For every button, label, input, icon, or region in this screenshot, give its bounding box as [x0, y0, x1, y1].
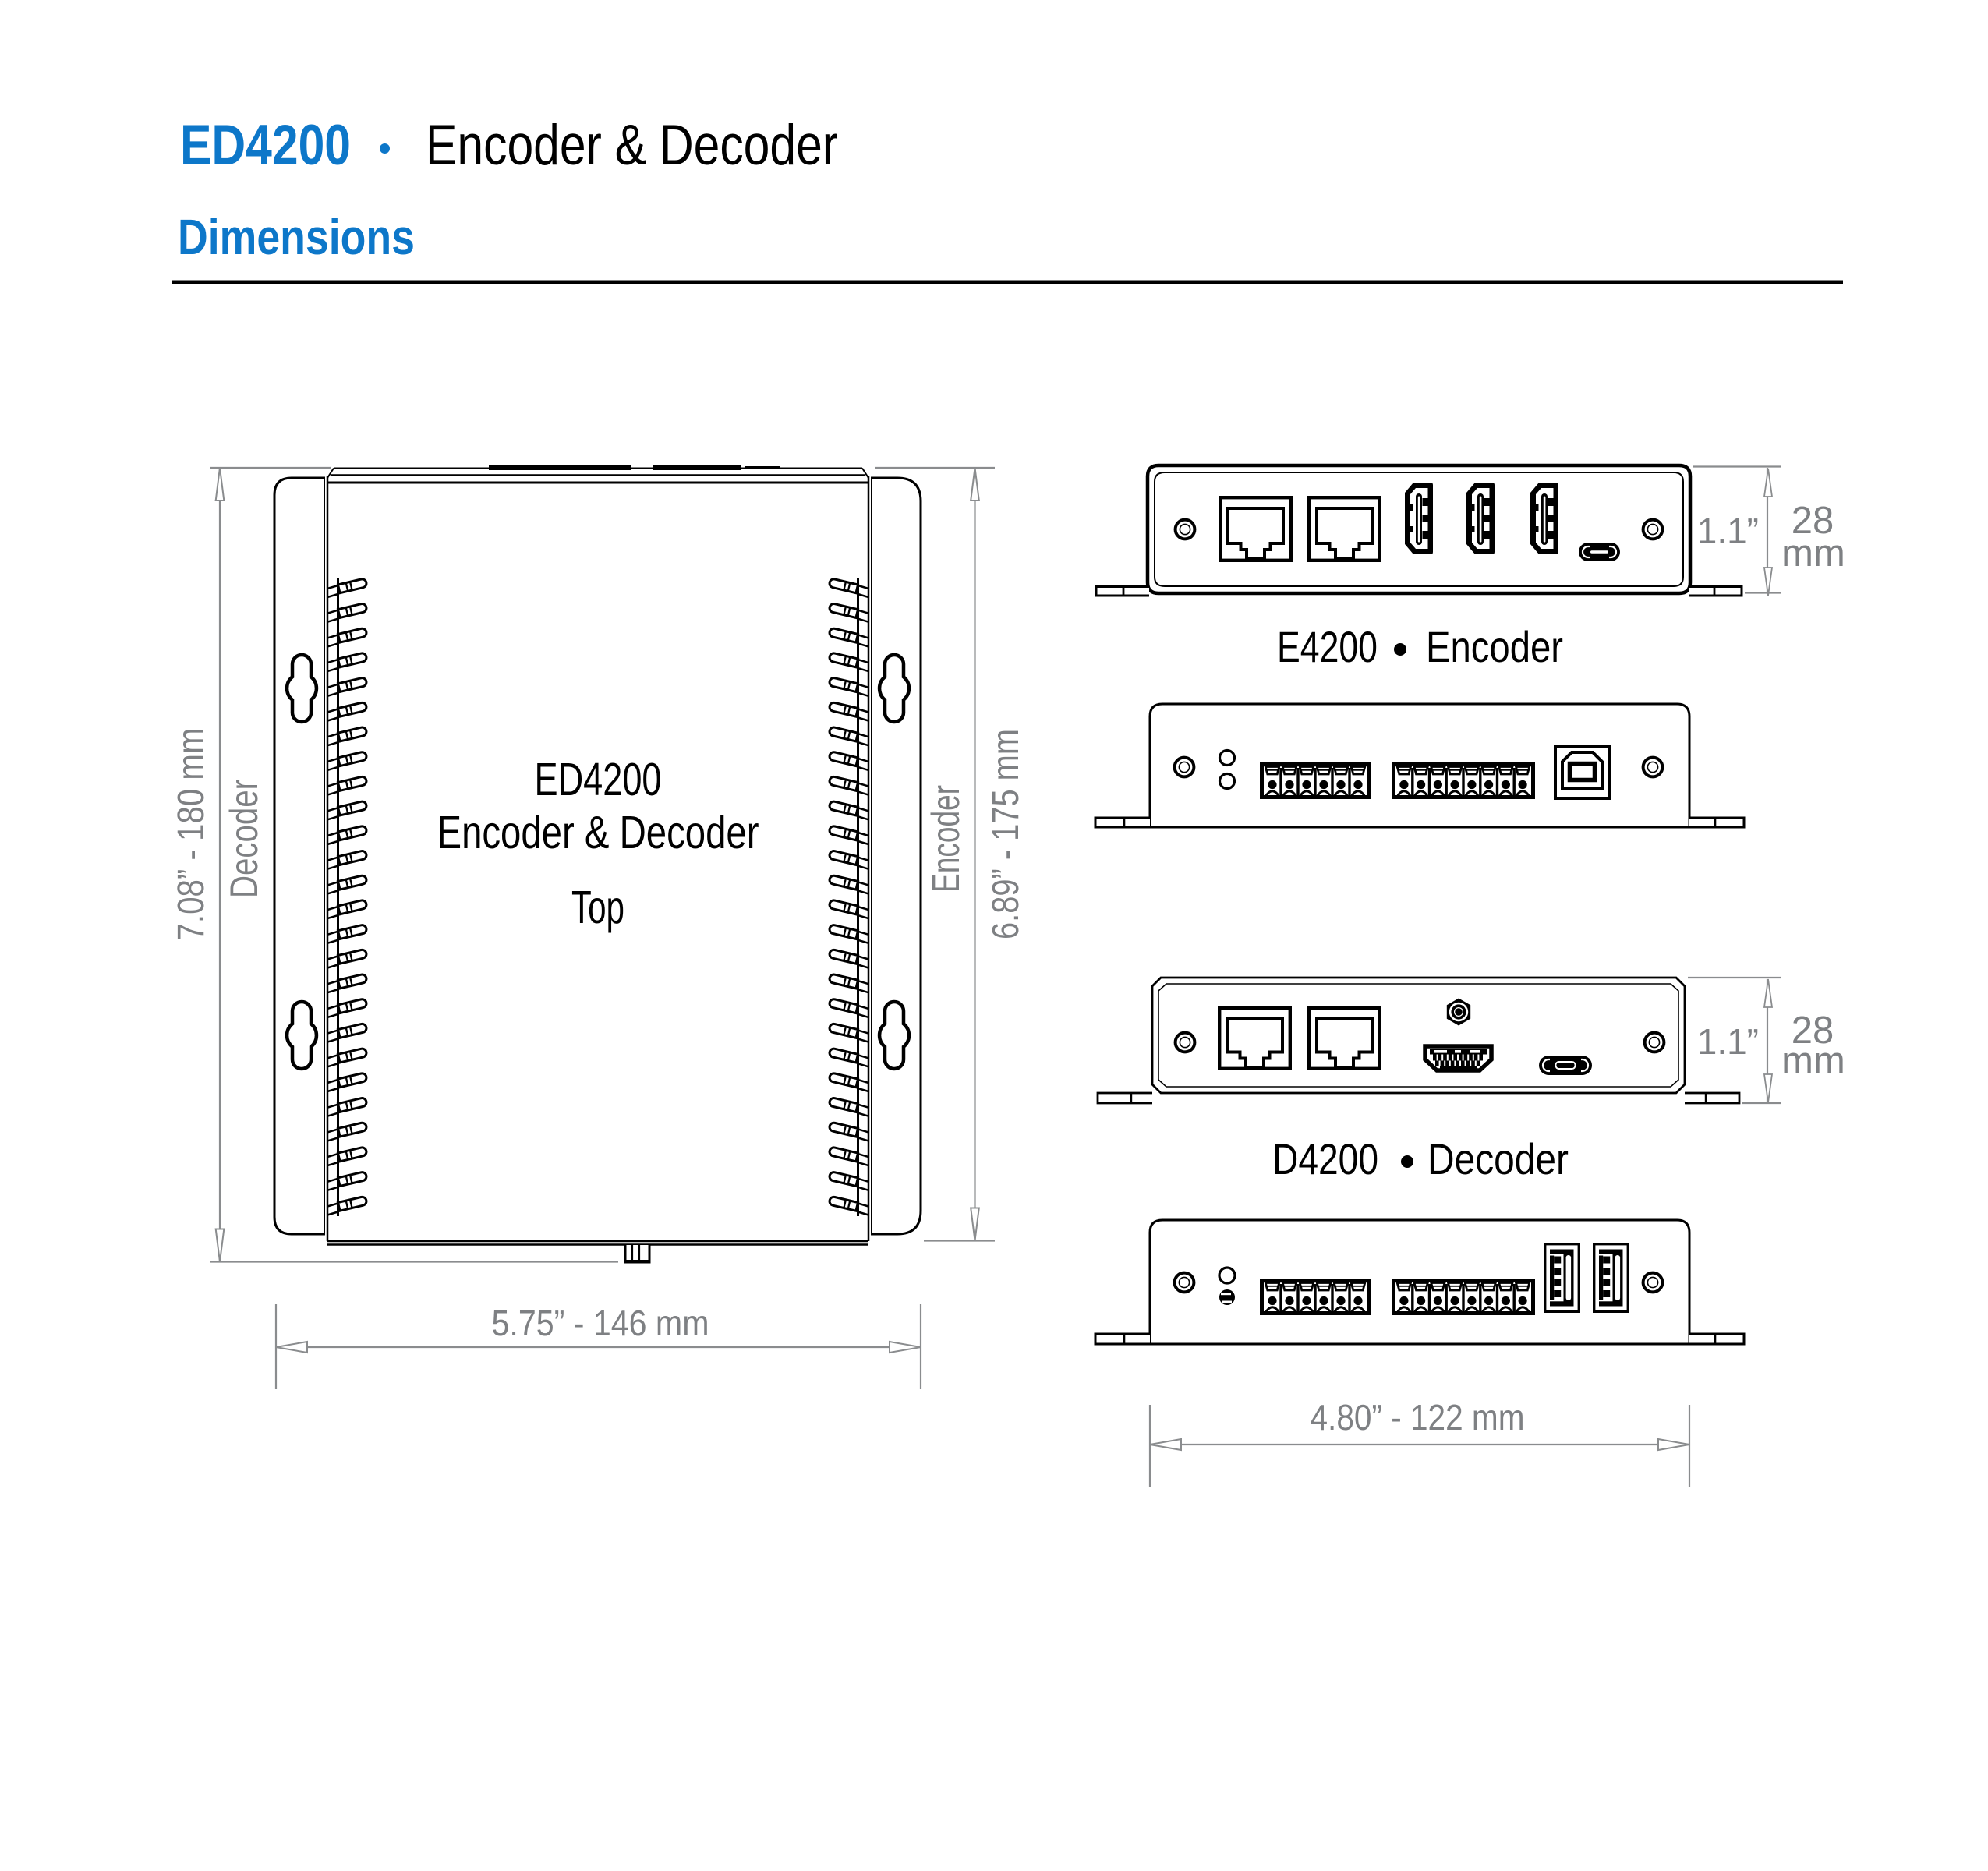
svg-text:E4200: E4200	[1277, 622, 1378, 671]
svg-text:ED4200: ED4200	[180, 114, 351, 177]
svg-text:ED4200: ED4200	[535, 754, 662, 805]
svg-text:Dimensions: Dimensions	[178, 209, 415, 265]
svg-text:1.1”: 1.1”	[1697, 1021, 1759, 1062]
svg-text:D4200: D4200	[1272, 1134, 1378, 1183]
svg-text:1.1”: 1.1”	[1697, 511, 1759, 551]
svg-text:5.75” - 146 mm: 5.75” - 146 mm	[492, 1303, 709, 1343]
svg-text:Encoder & Decoder: Encoder & Decoder	[426, 114, 838, 177]
svg-text:Decoder: Decoder	[222, 780, 266, 898]
svg-text:4.80” - 122 mm: 4.80” - 122 mm	[1311, 1397, 1525, 1438]
svg-text:mm: mm	[1781, 1040, 1845, 1082]
svg-text:Encoder: Encoder	[1426, 622, 1563, 671]
svg-text:Encoder: Encoder	[924, 785, 967, 893]
svg-text:mm: mm	[1781, 532, 1845, 575]
svg-text:6.89” - 175 mm: 6.89” - 175 mm	[985, 729, 1027, 939]
svg-text:7.08” - 180 mm: 7.08” - 180 mm	[171, 728, 212, 941]
svg-text:Encoder & Decoder: Encoder & Decoder	[437, 807, 759, 858]
svg-text:Decoder: Decoder	[1427, 1134, 1569, 1183]
svg-text:Top: Top	[571, 882, 624, 933]
